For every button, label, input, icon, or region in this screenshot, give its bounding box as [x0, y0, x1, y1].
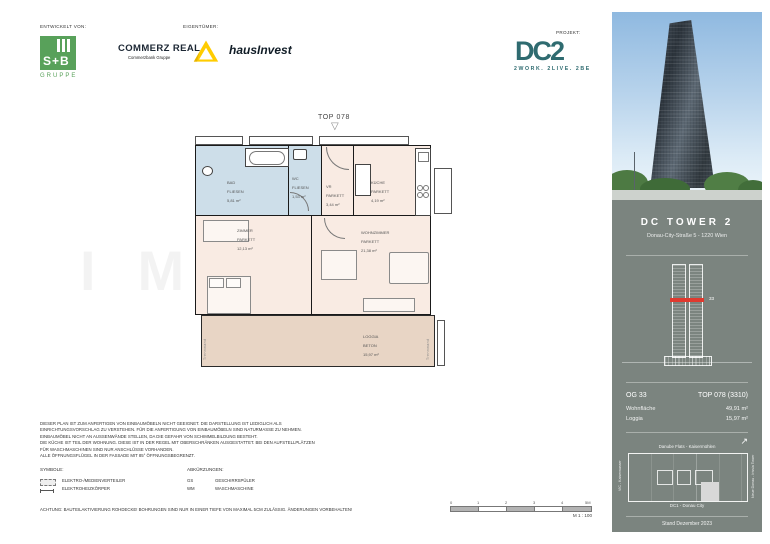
symbol-label: ELEKTROHEIZKÖRPER	[62, 486, 110, 491]
room-area: 5,81 m²	[227, 198, 241, 203]
caution-note: ACHTUNG: BAUTEILAKTIVIERUNG ROHDECKE! BO…	[40, 507, 352, 512]
dc-tower-2-render	[648, 20, 720, 188]
sidebar-title: DC TOWER 2	[612, 217, 762, 228]
wall	[196, 215, 431, 216]
sideboard	[363, 298, 415, 312]
room-label-kueche: KÜCHE PARKETT 4,19 m²	[371, 176, 389, 204]
room-name: WC	[292, 176, 299, 181]
scale-ratio-label: M 1 : 100	[536, 513, 592, 518]
core-box	[657, 470, 673, 485]
wall	[311, 216, 312, 314]
room-label-vr: VR PARKETT 3,44 m²	[326, 180, 344, 208]
abbr-key: WM	[187, 486, 195, 491]
siteplan-label-left: VIC - Kaiserwasser	[618, 452, 622, 500]
partition-label-right: Trennwand	[426, 324, 430, 360]
room-name: BAD	[227, 180, 235, 185]
dc2-logo-text: DC2	[515, 36, 563, 67]
sb-logo-bar-icon	[62, 39, 65, 52]
balcony-slab	[319, 136, 409, 145]
room-label-zimmer: ZIMMER PARKETT 12,13 m²	[237, 224, 255, 252]
hob-burner	[423, 192, 429, 198]
room-area: 1,53 m²	[292, 194, 306, 199]
loggia-area	[201, 315, 435, 367]
sb-logo-bar-icon	[67, 39, 70, 52]
note-line: EINRICHTUNGSVORSCHLAG ZU VERSTEHEN. FÜR …	[40, 427, 315, 433]
hob-burner	[423, 185, 429, 191]
sb-logo-text: S+B	[43, 54, 70, 68]
owner-label: EIGENTÜMER:	[183, 24, 218, 29]
floor-number-label: OG 33	[626, 392, 647, 399]
scale-segment	[562, 506, 592, 512]
sb-gruppe-label: GRUPPE	[40, 73, 76, 79]
dining-table	[321, 250, 357, 280]
scale-tick: 1	[477, 500, 479, 505]
couch	[389, 252, 429, 284]
scale-bar: 0 1 2 3 4 5M M 1 : 100	[450, 500, 596, 520]
highlighted-unit	[701, 482, 719, 501]
divider	[626, 432, 748, 433]
wall	[353, 146, 354, 215]
room-label-wohnzimmer: WOHNZIMMER PARKETT 21,38 m²	[361, 226, 389, 254]
room-name: VR	[326, 184, 332, 189]
dc2-tagline: 2WORK. 2LIVE. 2BE	[514, 66, 591, 72]
plan-notes: DIESER PLAN IST ZUM ANFERTIGEN VON EINBA…	[40, 421, 315, 459]
abbr-key: GS	[187, 478, 193, 483]
project-sidebar: DC TOWER 2 Donau-City-Straße 5 - 1220 Wi…	[612, 12, 762, 532]
pillow	[226, 278, 241, 288]
commerzbank-gruppe-label: Commerzbank Gruppe	[128, 55, 170, 60]
scale-segment	[478, 506, 508, 512]
lamp-post	[634, 152, 635, 190]
siteplan-label-right: Neue Donau - Irissia Tower	[751, 452, 755, 500]
room-floor: FLIESEN	[292, 185, 309, 190]
sb-gruppe-logo: S+B	[40, 36, 76, 70]
divider	[626, 255, 748, 256]
toilet	[293, 149, 307, 160]
ground	[612, 190, 762, 200]
bathtub-basin	[249, 151, 285, 165]
abbr-label: WASCHMASCHINE	[215, 486, 254, 491]
balcony-slab	[249, 136, 313, 145]
floor-33-marker	[670, 298, 704, 302]
elevation-column	[672, 264, 686, 358]
room-label-bad: BAD FLIESEN 5,81 m²	[227, 176, 244, 204]
washbasin	[202, 166, 213, 176]
sidebar-address: Donau-City-Straße 5 - 1220 Wien	[612, 233, 762, 239]
abbreviations-heading: ABKÜRZUNGEN:	[187, 467, 224, 472]
unit-number-label: TOP 078 (3310)	[698, 392, 748, 399]
room-area: 12,13 m²	[237, 246, 253, 251]
scale-segment	[450, 506, 480, 512]
floor-plan: Trennwand Trennwand BAD FLIESEN 5,81 m² …	[193, 132, 459, 374]
note-line: ALLE ÖFFNUNGSFLÜGEL IN DER FASSADE MIT 8…	[40, 453, 315, 459]
tower-base	[664, 356, 712, 366]
note-line: DIE KÜCHE IST TEIL DER WOHNUNG. DIESE IS…	[40, 440, 315, 446]
room-label-loggia: LOGGIA BETON 15,97 m²	[363, 330, 379, 358]
area-row-value: 49,91 m²	[726, 406, 748, 412]
abbr-label: GESCHIRRSPÜLER	[215, 478, 255, 483]
symbol-label: ELEKTRO-/MEDIENVERTEILER	[62, 478, 125, 483]
room-floor: PARKETT	[361, 239, 379, 244]
room-name: LOGGIA	[363, 334, 378, 339]
wall	[321, 146, 322, 215]
room-area: 4,19 m²	[371, 198, 385, 203]
room-floor: PARKETT	[371, 189, 389, 194]
elevation-column	[689, 264, 703, 358]
divider	[626, 382, 748, 383]
electric-radiator-symbol-icon	[40, 490, 54, 491]
room-floor: FLIESEN	[227, 189, 244, 194]
siteplan-label-bottom: DC1 - Donau City	[612, 503, 762, 508]
balcony-slab	[437, 320, 445, 366]
tower-elevation-diagram	[672, 264, 702, 356]
project-label: PROJEKT:	[556, 30, 580, 35]
area-row-label: Loggia	[626, 416, 643, 422]
partition-label-left: Trennwand	[203, 324, 207, 360]
divider	[626, 516, 748, 517]
room-floor: PARKETT	[237, 237, 255, 242]
room-label-wc: WC FLIESEN 1,53 m²	[292, 172, 309, 200]
commerz-real-logo-text: COMMERZ REAL	[118, 43, 200, 54]
balcony-slab	[195, 136, 243, 145]
scale-tick: 4	[561, 500, 563, 505]
scale-tick: 2	[505, 500, 507, 505]
symbols-heading: SYMBOLE:	[40, 467, 64, 472]
scale-tick: 3	[533, 500, 535, 505]
commerzbank-chevron-icon	[193, 39, 219, 68]
shaft-box	[434, 168, 452, 214]
scale-tick: 0	[450, 500, 452, 505]
scale-segment	[506, 506, 536, 512]
room-name: ZIMMER	[237, 228, 253, 233]
hausinvest-logo-text: hausInvest	[229, 43, 292, 57]
tower-photo	[612, 12, 762, 200]
unit-top-label: TOP 078	[318, 114, 350, 121]
pillow	[209, 278, 224, 288]
core-box	[677, 470, 691, 485]
room-name: KÜCHE	[371, 180, 385, 185]
entrance-marker-icon: ▽	[331, 121, 339, 132]
scale-segment	[534, 506, 564, 512]
room-area: 15,97 m²	[363, 352, 379, 357]
developed-by-label: ENTWICKELT VON:	[40, 24, 86, 29]
room-name: WOHNZIMMER	[361, 230, 389, 235]
kitchen-cabinet	[355, 164, 371, 196]
room-area: 21,38 m²	[361, 248, 377, 253]
kitchen-sink	[418, 152, 429, 162]
electro-distributor-symbol-icon	[40, 479, 56, 486]
site-key-plan	[628, 453, 748, 502]
area-row-value: 15,97 m²	[726, 416, 748, 422]
scale-tick: 5M	[585, 500, 591, 505]
room-area: 3,44 m²	[326, 202, 340, 207]
plan-date: Stand Dezember 2023	[612, 521, 762, 527]
floor-33-number: 33	[709, 296, 714, 301]
room-floor: BETON	[363, 343, 377, 348]
room-floor: PARKETT	[326, 193, 344, 198]
sb-logo-bar-icon	[57, 39, 60, 52]
siteplan-label-top: Danube Flats - Kaisermühlen	[612, 444, 762, 449]
ground-line	[622, 362, 752, 363]
area-row-label: Wohnfläche	[626, 406, 655, 412]
